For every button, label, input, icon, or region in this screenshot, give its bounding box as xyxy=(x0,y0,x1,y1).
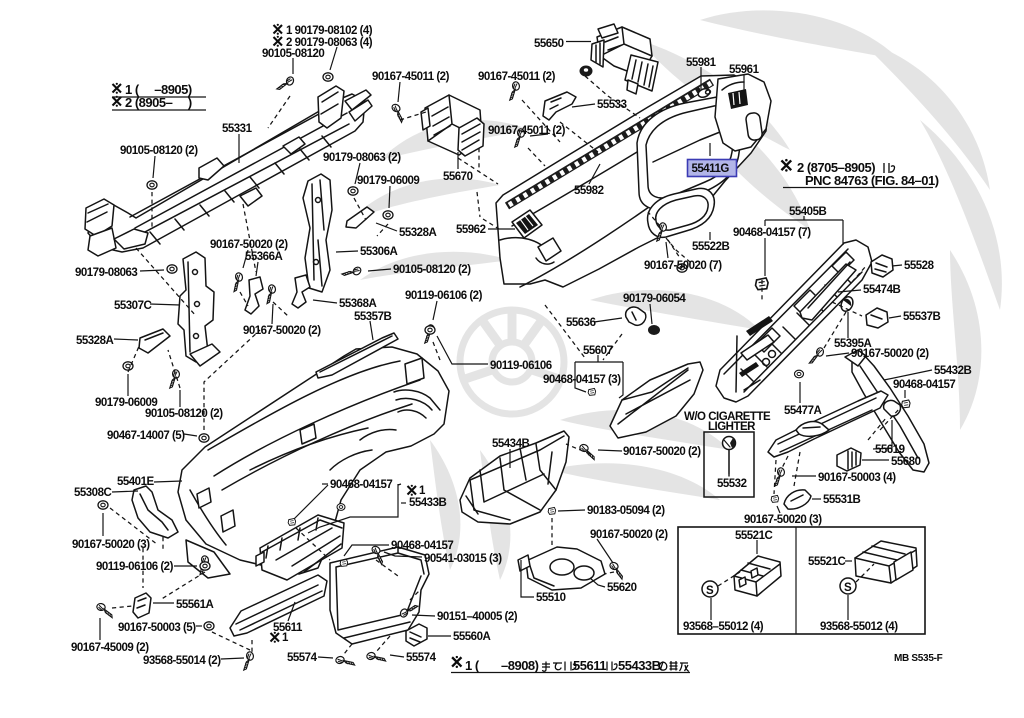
svg-text:MB S535-F: MB S535-F xyxy=(894,653,943,664)
svg-text:55434B: 55434B xyxy=(492,438,529,450)
svg-text:55574: 55574 xyxy=(287,652,318,664)
svg-text:55533: 55533 xyxy=(597,99,627,111)
svg-text:55510: 55510 xyxy=(536,592,566,604)
svg-text:55307C: 55307C xyxy=(114,300,151,312)
svg-text:90167-50003 (4): 90167-50003 (4) xyxy=(818,472,896,484)
svg-text:55607: 55607 xyxy=(583,345,613,357)
svg-text:90468-04157 (3): 90468-04157 (3) xyxy=(543,374,621,386)
svg-text:55680: 55680 xyxy=(891,456,921,468)
svg-text:93568-55012 (4): 93568-55012 (4) xyxy=(820,621,898,633)
svg-text:55433B: 55433B xyxy=(618,658,661,673)
svg-text:55561A: 55561A xyxy=(176,599,213,611)
svg-text:90167-50020 (2): 90167-50020 (2) xyxy=(210,239,288,251)
svg-text:55522B: 55522B xyxy=(692,241,729,253)
svg-text:55528: 55528 xyxy=(904,260,935,272)
svg-text:55531B: 55531B xyxy=(823,494,860,506)
svg-text:93568–55012 (4): 93568–55012 (4) xyxy=(683,621,764,633)
svg-text:55636: 55636 xyxy=(566,317,596,329)
svg-text:LIGHTER: LIGHTER xyxy=(708,421,756,433)
svg-text:55432B: 55432B xyxy=(934,365,971,377)
svg-text:90119-06106 (2): 90119-06106 (2) xyxy=(96,561,174,573)
svg-text:90167-50003 (5): 90167-50003 (5) xyxy=(118,622,196,634)
svg-text:55620: 55620 xyxy=(607,582,637,594)
svg-text:90167-50020 (3): 90167-50020 (3) xyxy=(744,514,822,526)
svg-text:90179-08063: 90179-08063 xyxy=(75,267,137,279)
svg-text:90167-45009 (2): 90167-45009 (2) xyxy=(71,642,149,654)
svg-text:90105-08120: 90105-08120 xyxy=(262,48,324,60)
svg-text:90167-50020 (2): 90167-50020 (2) xyxy=(623,446,701,458)
svg-text:55611: 55611 xyxy=(573,658,606,673)
svg-text:90541-03015 (3): 90541-03015 (3) xyxy=(424,553,502,565)
svg-text:90468-04157: 90468-04157 xyxy=(330,479,392,491)
svg-text:55619: 55619 xyxy=(875,444,905,456)
svg-text:90105-08120 (2): 90105-08120 (2) xyxy=(393,264,471,276)
svg-text:55521C: 55521C xyxy=(808,556,845,568)
svg-text:55477A: 55477A xyxy=(784,405,821,417)
svg-text:55328A: 55328A xyxy=(399,227,436,239)
svg-text:90468-04157: 90468-04157 xyxy=(391,540,453,552)
svg-text:55981: 55981 xyxy=(686,57,717,69)
svg-text:90167-45011 (2): 90167-45011 (2) xyxy=(478,71,556,83)
svg-text:55405B: 55405B xyxy=(789,206,826,218)
svg-text:90167-50020 (3): 90167-50020 (3) xyxy=(72,539,150,551)
svg-text:90468-04157 (7): 90468-04157 (7) xyxy=(733,227,811,239)
svg-text:–8908): –8908) xyxy=(501,658,539,673)
svg-text:55368A: 55368A xyxy=(339,298,376,310)
svg-text:90167-50020 (7): 90167-50020 (7) xyxy=(644,260,722,272)
svg-text:90167-50020 (2): 90167-50020 (2) xyxy=(243,325,321,337)
svg-text:90167-50020 (2): 90167-50020 (2) xyxy=(851,348,929,360)
svg-text:55357B: 55357B xyxy=(354,311,391,323)
svg-text:55331: 55331 xyxy=(222,123,253,135)
svg-text:55401E: 55401E xyxy=(117,476,154,488)
svg-text:55560A: 55560A xyxy=(453,631,490,643)
svg-text:55962: 55962 xyxy=(456,224,486,236)
svg-text:90119-06106 (2): 90119-06106 (2) xyxy=(405,290,483,302)
svg-text:55474B: 55474B xyxy=(863,284,900,296)
svg-text:55574: 55574 xyxy=(406,652,437,664)
svg-text:55670: 55670 xyxy=(443,171,473,183)
svg-text:55411G: 55411G xyxy=(692,163,730,175)
svg-text:55611: 55611 xyxy=(273,622,303,634)
svg-text:93568-55014 (2): 93568-55014 (2) xyxy=(143,655,221,667)
svg-text:55328A: 55328A xyxy=(76,335,113,347)
svg-text:90105-08120 (2): 90105-08120 (2) xyxy=(145,408,223,420)
svg-text:1 (: 1 ( xyxy=(465,658,480,673)
svg-text:PNC 84763 (FIG. 84–01): PNC 84763 (FIG. 84–01) xyxy=(805,173,939,188)
svg-text:90151–40005 (2): 90151–40005 (2) xyxy=(437,611,518,623)
svg-text:55308C: 55308C xyxy=(74,487,111,499)
svg-text:90167-50020 (2): 90167-50020 (2) xyxy=(590,529,668,541)
svg-text:S: S xyxy=(706,585,714,597)
svg-text:55521C: 55521C xyxy=(735,530,772,542)
svg-text:90105-08120 (2): 90105-08120 (2) xyxy=(120,145,198,157)
svg-text:90179-08063 (2): 90179-08063 (2) xyxy=(323,152,401,164)
svg-text:55537B: 55537B xyxy=(903,311,940,323)
svg-text:90119-06106: 90119-06106 xyxy=(490,360,552,372)
svg-text:55982: 55982 xyxy=(574,185,604,197)
svg-text:55650: 55650 xyxy=(534,38,564,50)
svg-text:90179-06009: 90179-06009 xyxy=(357,175,419,187)
svg-text:90179-06054: 90179-06054 xyxy=(623,293,686,305)
svg-text:90167-45011 (2): 90167-45011 (2) xyxy=(488,125,566,137)
svg-text:55433B: 55433B xyxy=(409,497,446,509)
svg-text:S: S xyxy=(844,582,852,594)
svg-text:90183-05094 (2): 90183-05094 (2) xyxy=(587,505,665,517)
svg-text:1 90179-08102 (4): 1 90179-08102 (4) xyxy=(286,25,373,37)
svg-text:90167-45011 (2): 90167-45011 (2) xyxy=(372,71,450,83)
svg-text:90467-14007 (5): 90467-14007 (5) xyxy=(107,430,185,442)
svg-text:55306A: 55306A xyxy=(360,246,397,258)
svg-text:55532: 55532 xyxy=(717,478,747,490)
svg-text:55961: 55961 xyxy=(729,64,760,76)
svg-text:55366A: 55366A xyxy=(245,251,282,263)
svg-text:90468-04157: 90468-04157 xyxy=(893,379,955,391)
